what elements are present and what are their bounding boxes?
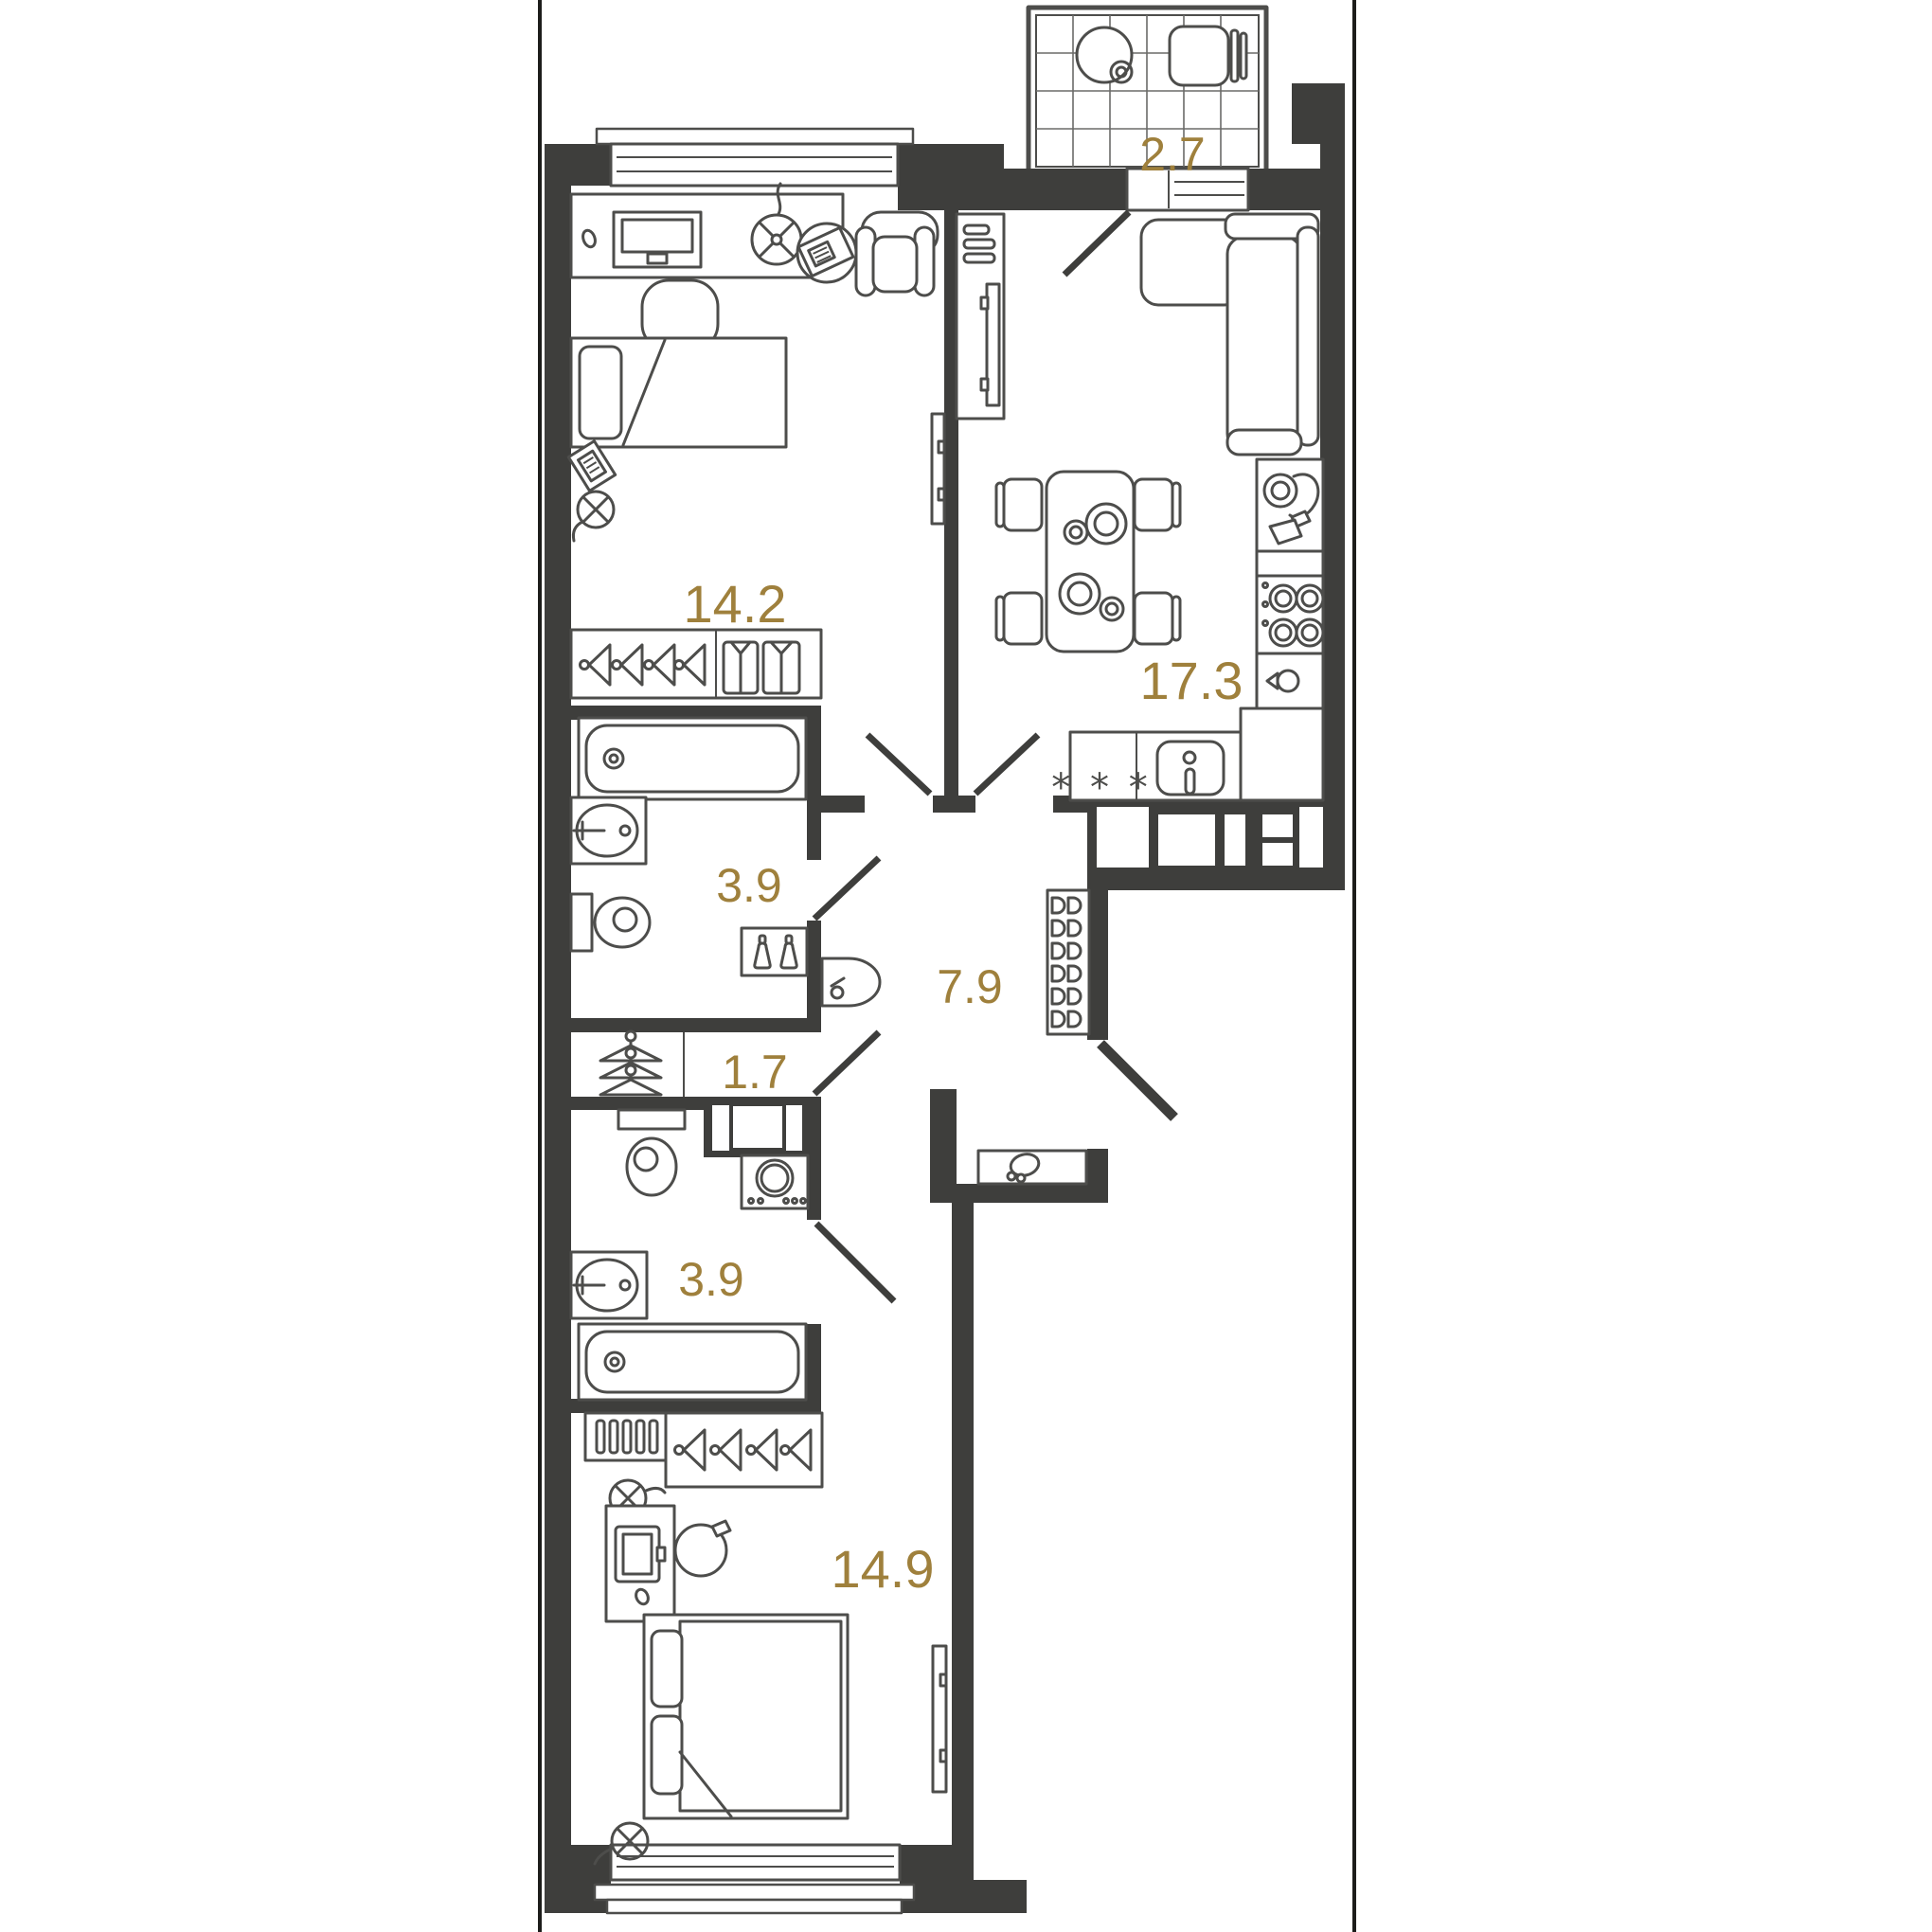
window-room-top <box>597 129 913 186</box>
dishwasher-symbol: * * * <box>1051 766 1151 810</box>
kitchen-counter-bottom: * * * <box>1051 732 1241 810</box>
closet-door-swing <box>814 1032 879 1094</box>
single-bed-icon <box>571 338 786 447</box>
stove-icon <box>1257 576 1323 653</box>
ceiling-lamp-icon <box>573 492 614 541</box>
kitchen-living-furniture: * * * <box>957 214 1323 810</box>
toilet-icon <box>571 894 650 951</box>
corner-sofa-icon <box>1141 214 1318 455</box>
room-top-area-label: 14.2 <box>684 574 787 634</box>
balcony-door-swing <box>1064 212 1129 275</box>
dining-table-icon <box>1046 472 1134 652</box>
bedroom-wardrobe-icon <box>666 1413 822 1487</box>
wardrobe-room-top-icon <box>571 630 821 698</box>
kitchen-door-swing <box>975 735 1038 794</box>
table-lamp-icon <box>675 1521 730 1576</box>
bathroom-top-furniture <box>571 718 807 975</box>
bathroom-top-door-swing <box>814 858 879 919</box>
double-bed-icon <box>644 1615 848 1818</box>
hall-washbasin-icon <box>822 958 880 1006</box>
closet-furniture <box>600 1031 684 1097</box>
tv-stand-kitchen-icon <box>957 214 1004 419</box>
magazine-icon <box>568 441 615 492</box>
bathroom-top-area-label: 3.9 <box>716 859 782 912</box>
side-table-icon <box>797 224 856 282</box>
bathroom-sink-icon <box>571 797 646 864</box>
balcony-chair-icon <box>1170 27 1246 85</box>
shoe-cabinet-icon <box>1047 890 1089 1034</box>
armchair-icon <box>856 212 938 295</box>
kitchen-area-label: 17.3 <box>1140 651 1243 710</box>
bathtub-icon <box>579 1324 806 1400</box>
kettle-cabinet-icon <box>1257 653 1323 708</box>
nightstand-icon <box>606 1506 674 1621</box>
floor-plan-canvas: * * * <box>0 0 1932 1932</box>
bedroom-area-label: 14.9 <box>832 1539 935 1599</box>
bathtub-icon <box>579 718 806 799</box>
tv-bedroom-icon <box>933 1646 946 1792</box>
bedroom-furniture <box>585 1413 946 1864</box>
sconce-console-icon <box>978 1151 1086 1184</box>
kitchen-counter-right <box>1241 459 1323 800</box>
hallway-area-label: 7.9 <box>937 960 1003 1013</box>
bedroom-shelf-icon <box>585 1413 666 1460</box>
bathroom-bottom-area-label: 3.9 <box>678 1253 744 1306</box>
tv-room-top-icon <box>932 414 944 524</box>
closet-area-label: 1.7 <box>722 1046 788 1099</box>
toilet-icon <box>618 1110 685 1195</box>
room-top-door-swing <box>868 735 930 794</box>
shelf-bottles-icon <box>742 928 807 975</box>
entry-door-swing <box>1100 1044 1174 1118</box>
kitchen-sink-icon <box>1157 742 1224 795</box>
balcony-area-label: 2.7 <box>1139 128 1206 181</box>
balcony-table-icon <box>1077 27 1132 82</box>
bathroom-sink-icon <box>571 1252 647 1318</box>
washing-machine-icon <box>742 1155 808 1208</box>
bathroom-bottom-door-swing <box>816 1224 894 1301</box>
